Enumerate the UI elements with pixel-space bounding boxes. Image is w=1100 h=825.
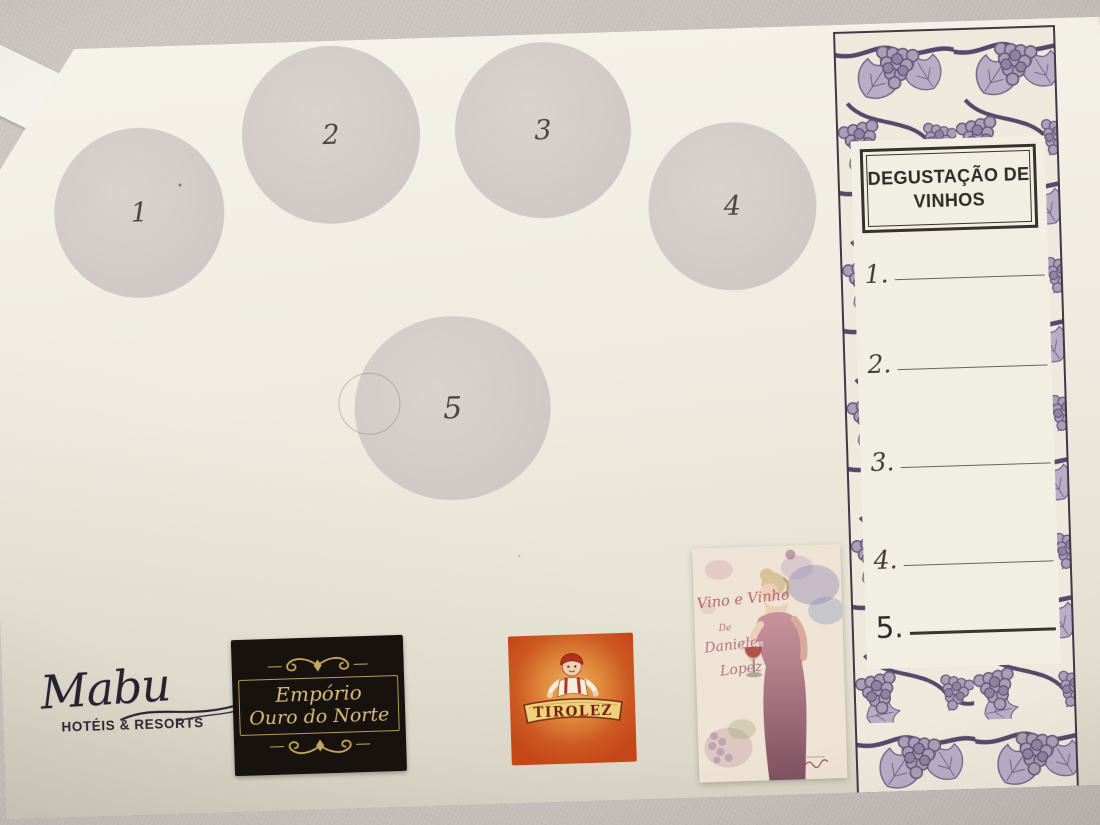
note-line-5-number: 5. [875,613,904,643]
paper-speck [178,184,181,187]
note-line-3-number: 3. [870,449,895,475]
glass-circle-3: 3 [452,39,633,220]
tirolez-logo: TIROLEZ [508,633,637,766]
note-line-2: 2. [867,337,1048,377]
grape-border-panel: DEGUSTAÇÃO DE VINHOS 1. 2. 3. 4. [833,25,1079,795]
note-line-5: 5. [875,603,1056,643]
note-line-4-rule [904,560,1054,566]
glass-circle-2-number: 2 [322,119,340,151]
glass-circle-5-number: 5 [443,390,463,426]
tirolez-wordmark: TIROLEZ [533,703,613,721]
note-line-1-number: 1. [864,261,889,287]
tasting-title-line1: DEGUSTAÇÃO DE [867,162,1030,191]
glass-circle-1-number: 1 [130,197,148,229]
placemat: 1 2 3 4 5 [0,17,1100,820]
glass-circle-2: 2 [239,43,423,227]
emporio-line2: Ouro do Norte [249,703,390,729]
watercolor-woman-wine-art [692,544,847,783]
note-line-1-rule [895,274,1045,280]
glass-circle-1: 1 [52,125,227,300]
scroll-ornament-icon [265,654,370,677]
scroll-ornament-icon [268,734,373,757]
paper-speck [518,555,520,557]
vinho-poster: Vino e Vinho De Daniele Lopez [692,544,847,783]
table-surface: 1 2 3 4 5 [0,0,1100,825]
poster-byline: De [719,624,732,634]
mabu-logo: Mabu HOTÉIS & RESORTS [39,656,242,766]
note-line-1: 1. [864,247,1045,287]
tasting-title-line2: VINHOS [913,187,985,214]
emporio-frame: Empório Ouro do Norte [238,675,400,736]
glass-circle-3-number: 3 [534,114,552,146]
note-line-4: 4. [873,533,1054,573]
note-line-5-rule [910,627,1056,635]
glass-circle-4-number: 4 [723,190,741,222]
note-line-2-number: 2. [867,351,892,377]
note-line-3-rule [901,462,1051,468]
glass-circle-4: 4 [646,120,819,293]
note-line-3: 3. [870,435,1051,475]
mabu-flourish [119,698,250,726]
emporio-ouro-do-norte-logo: Empório Ouro do Norte [231,635,407,776]
tasting-title-box: DEGUSTAÇÃO DE VINHOS [860,144,1039,233]
note-line-2-rule [897,364,1047,370]
tirolez-banner: TIROLEZ [519,693,626,728]
note-line-4-number: 4. [873,547,898,573]
tasting-notes-panel: DEGUSTAÇÃO DE VINHOS 1. 2. 3. 4. [850,135,1060,669]
